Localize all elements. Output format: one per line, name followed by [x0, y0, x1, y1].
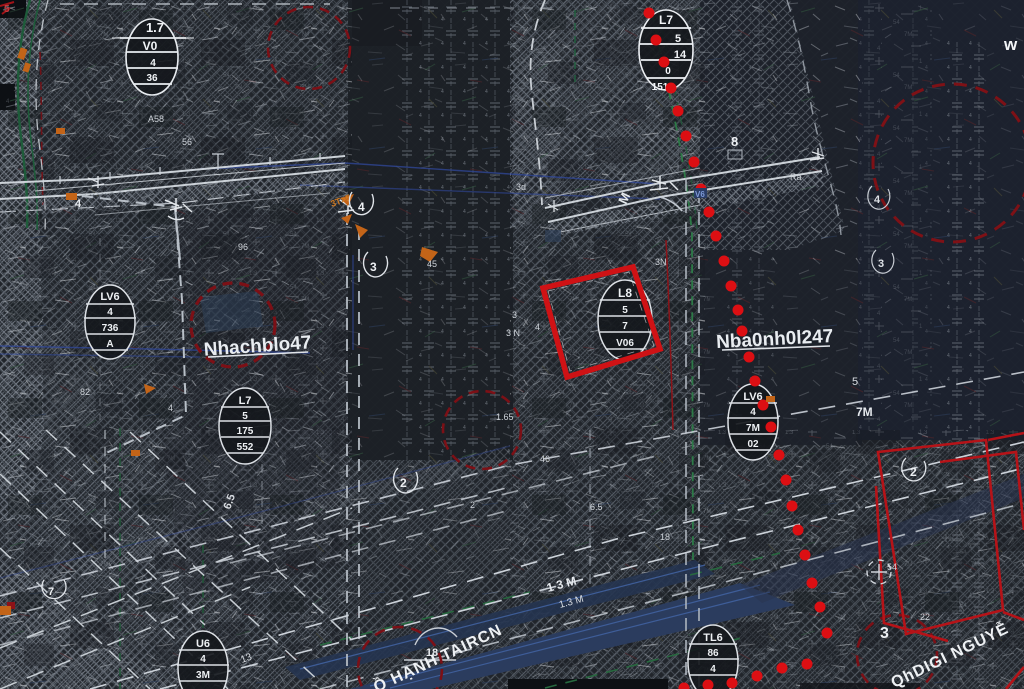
svg-text:175: 175 — [237, 426, 254, 437]
svg-text:4: 4 — [358, 200, 365, 214]
svg-text:w: w — [1003, 35, 1018, 54]
svg-text:7: 7 — [622, 321, 628, 332]
svg-text:L8: L8 — [618, 286, 632, 300]
svg-text:4: 4 — [750, 407, 756, 418]
svg-text:L7: L7 — [659, 13, 673, 27]
svg-text:552: 552 — [237, 442, 254, 453]
svg-text:96: 96 — [238, 242, 248, 252]
svg-text:7M: 7M — [856, 405, 873, 419]
svg-text:4: 4 — [150, 58, 156, 69]
svg-text:5: 5 — [242, 411, 248, 422]
svg-text:36: 36 — [146, 73, 158, 84]
svg-text:A: A — [106, 339, 113, 350]
svg-text:1.65: 1.65 — [496, 412, 514, 422]
svg-text:4: 4 — [710, 664, 716, 675]
svg-text:4: 4 — [535, 322, 540, 332]
svg-text:V6: V6 — [695, 190, 705, 199]
svg-text:4: 4 — [168, 403, 173, 413]
svg-text:V06: V06 — [616, 338, 634, 349]
svg-text:18: 18 — [660, 532, 670, 542]
svg-text:14: 14 — [674, 49, 687, 61]
svg-text:5: 5 — [4, 4, 10, 15]
svg-text:3: 3 — [512, 310, 517, 320]
svg-text:3: 3 — [370, 260, 377, 274]
svg-text:82: 82 — [80, 387, 90, 397]
svg-text:A58: A58 — [148, 114, 164, 124]
svg-text:2: 2 — [910, 465, 917, 479]
svg-text:46: 46 — [540, 454, 550, 464]
svg-text:0: 0 — [665, 66, 671, 77]
svg-text:4: 4 — [200, 654, 206, 665]
svg-text:02: 02 — [747, 439, 759, 450]
svg-text:4: 4 — [75, 198, 82, 210]
svg-text:LV6: LV6 — [100, 291, 119, 303]
svg-text:56: 56 — [182, 137, 192, 147]
svg-text:5: 5 — [852, 376, 858, 388]
svg-text:U6: U6 — [196, 638, 210, 650]
svg-text:5: 5 — [675, 33, 681, 45]
svg-text:3: 3 — [878, 258, 884, 270]
svg-text:1.7: 1.7 — [146, 20, 164, 35]
svg-text:4: 4 — [874, 194, 881, 206]
svg-text:3N: 3N — [655, 257, 667, 267]
svg-text:6.5: 6.5 — [590, 502, 603, 512]
svg-text:3: 3 — [880, 625, 889, 642]
svg-text:736: 736 — [102, 323, 119, 334]
svg-text:TL6: TL6 — [703, 632, 723, 644]
svg-text:L7: L7 — [239, 395, 252, 407]
svg-text:2: 2 — [470, 500, 475, 510]
svg-text:Ra: Ra — [790, 172, 802, 182]
svg-text:3 N: 3 N — [506, 328, 520, 338]
svg-text:4: 4 — [107, 307, 113, 318]
svg-text:5: 5 — [622, 305, 628, 316]
svg-text:V0: V0 — [143, 39, 158, 53]
svg-text:45: 45 — [427, 259, 437, 269]
svg-text:54: 54 — [887, 562, 897, 572]
svg-text:3M: 3M — [196, 670, 210, 681]
svg-text:7M: 7M — [746, 423, 760, 434]
svg-text:7: 7 — [48, 586, 54, 598]
svg-text:3d: 3d — [516, 182, 526, 192]
svg-text:86: 86 — [707, 648, 719, 659]
svg-text:22: 22 — [920, 612, 930, 622]
svg-text:2: 2 — [400, 476, 407, 490]
svg-text:8: 8 — [731, 134, 738, 149]
